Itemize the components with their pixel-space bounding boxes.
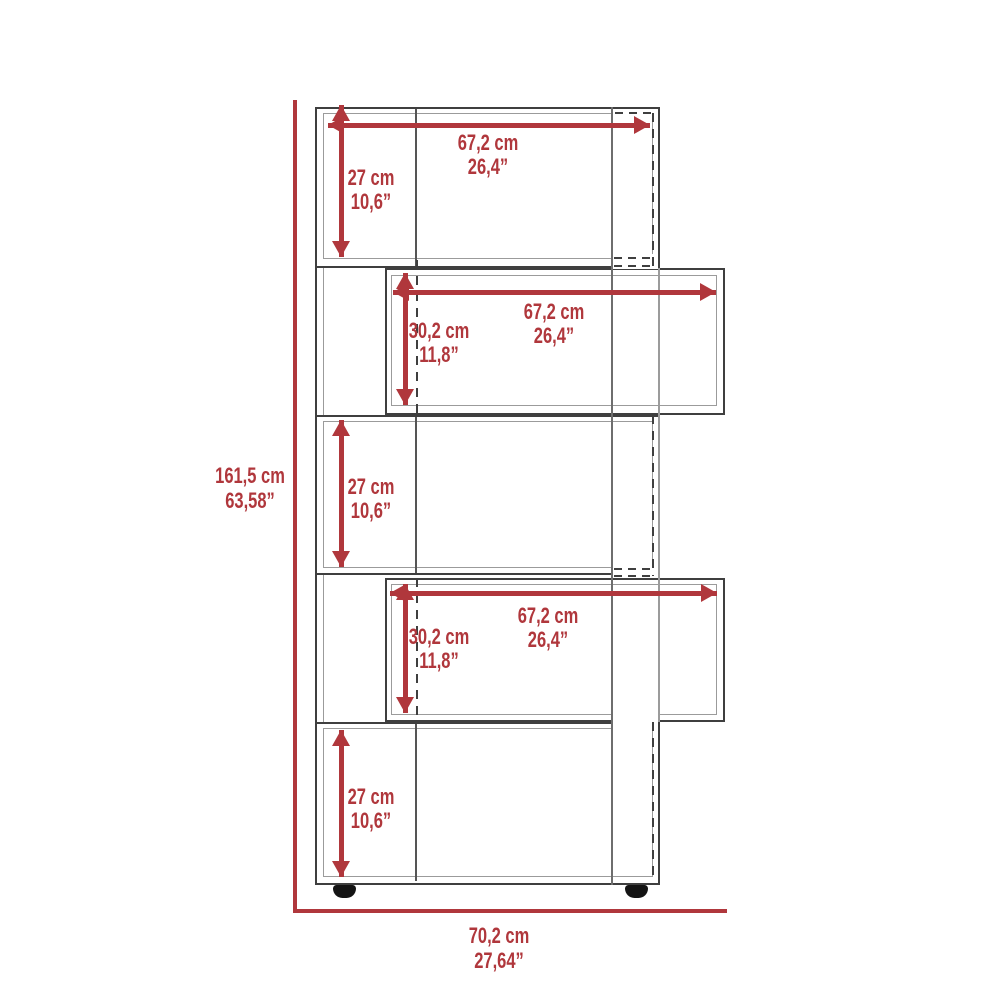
shelf-2-width-label: 67,2 cm 26,4” bbox=[494, 300, 614, 348]
value-cm: 27 cm bbox=[326, 475, 416, 499]
arrowhead-down bbox=[396, 697, 414, 713]
value-cm: 70,2 cm bbox=[439, 923, 559, 948]
spine-front-edge bbox=[611, 107, 613, 885]
arrowhead-down bbox=[332, 551, 350, 567]
arrowhead-up bbox=[332, 420, 350, 436]
value-in: 10,6” bbox=[326, 499, 416, 523]
arrowhead-up bbox=[332, 730, 350, 746]
hidden-spine-edge-middle bbox=[652, 415, 654, 576]
arrowhead-down bbox=[332, 861, 350, 877]
shelf-4-width-label: 67,2 cm 26,4” bbox=[488, 604, 608, 652]
overall-width-label: 70,2 cm 27,64” bbox=[439, 923, 559, 973]
shelf-4-width-arrow bbox=[390, 591, 717, 596]
arrowhead-down bbox=[396, 389, 414, 405]
value-in: 27,64” bbox=[439, 948, 559, 973]
value-in: 11,8” bbox=[394, 343, 484, 367]
value-in: 26,4” bbox=[428, 155, 548, 179]
hidden-edge-shelf1-bottom-b bbox=[614, 265, 656, 267]
arrowhead-right bbox=[634, 116, 650, 134]
right-foot bbox=[625, 885, 648, 898]
spine-back-edge bbox=[658, 268, 660, 722]
value-in: 26,4” bbox=[488, 628, 608, 652]
dimension-diagram: 67,2 cm 26,4” 27 cm 10,6” 67,2 cm 26,4” … bbox=[0, 0, 1000, 1000]
shelf-3-height-label: 27 cm 10,6” bbox=[326, 475, 416, 523]
shelf-2-width-arrow bbox=[393, 290, 716, 295]
arrowhead-right bbox=[701, 584, 717, 602]
arrowhead-up bbox=[396, 584, 414, 600]
value-cm: 161,5 cm bbox=[194, 463, 307, 488]
hidden-edge-shelf3-bottom-a bbox=[614, 568, 656, 570]
hidden-edge-shelf1-bottom-a bbox=[614, 257, 656, 259]
value-in: 63,58” bbox=[194, 488, 307, 513]
shelf-1-height-label: 27 cm 10,6” bbox=[326, 166, 416, 214]
value-cm: 67,2 cm bbox=[494, 300, 614, 324]
hidden-edge-shelf3-bottom-b bbox=[614, 575, 656, 577]
value-cm: 30,2 cm bbox=[394, 319, 484, 343]
hidden-spine-edge-upper bbox=[652, 113, 654, 266]
shelf-2-height-label: 30,2 cm 11,8” bbox=[394, 319, 484, 367]
value-cm: 30,2 cm bbox=[394, 625, 484, 649]
shelf-1-width-label: 67,2 cm 26,4” bbox=[428, 131, 548, 179]
value-in: 10,6” bbox=[326, 190, 416, 214]
shelf-4-height-label: 30,2 cm 11,8” bbox=[394, 625, 484, 673]
left-side-panel-upper bbox=[315, 268, 324, 415]
left-foot bbox=[333, 885, 356, 898]
value-in: 26,4” bbox=[494, 324, 614, 348]
arrowhead-up bbox=[396, 273, 414, 289]
arrowhead-up bbox=[332, 105, 350, 121]
left-side-panel-lower bbox=[315, 575, 324, 722]
shelf-5-height-label: 27 cm 10,6” bbox=[326, 785, 416, 833]
shelf-1-width-arrow bbox=[328, 123, 650, 128]
overall-width-line bbox=[293, 909, 727, 913]
hidden-edge-shelf1-top bbox=[615, 112, 653, 114]
value-in: 11,8” bbox=[394, 649, 484, 673]
value-cm: 67,2 cm bbox=[488, 604, 608, 628]
arrowhead-down bbox=[332, 241, 350, 257]
arrowhead-right bbox=[700, 283, 716, 301]
overall-height-label: 161,5 cm 63,58” bbox=[194, 463, 307, 513]
value-in: 10,6” bbox=[326, 809, 416, 833]
hidden-spine-edge-lower bbox=[652, 722, 654, 877]
value-cm: 27 cm bbox=[326, 166, 416, 190]
value-cm: 67,2 cm bbox=[428, 131, 548, 155]
value-cm: 27 cm bbox=[326, 785, 416, 809]
